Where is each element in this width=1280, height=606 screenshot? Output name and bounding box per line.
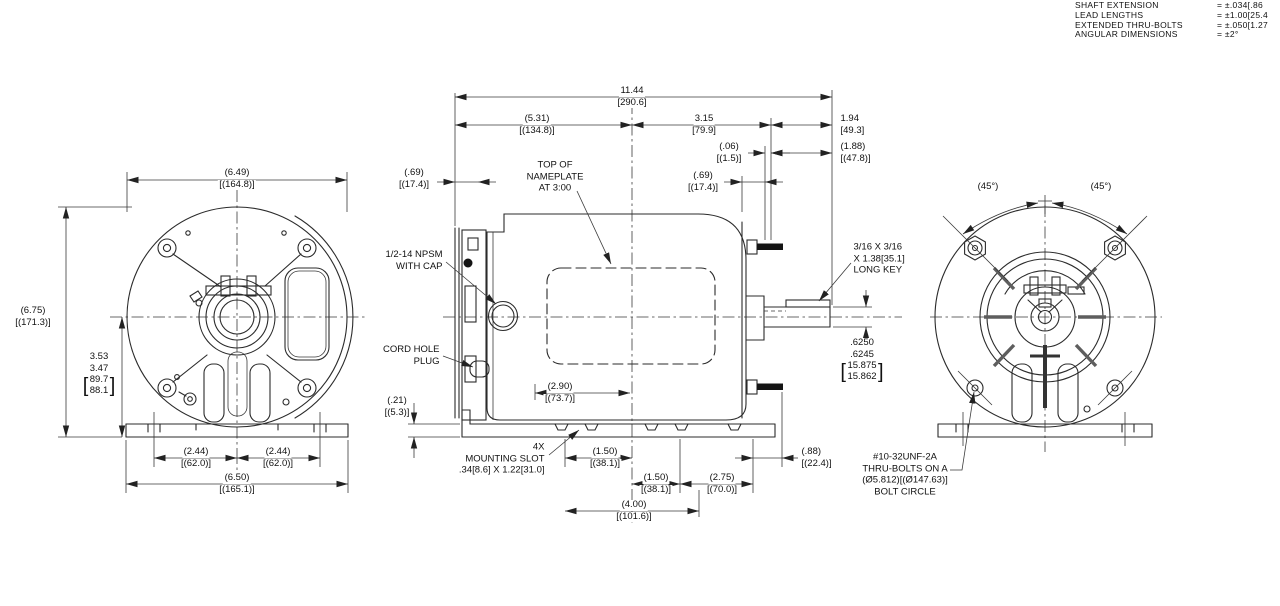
dim-foot-right: (2.44) [(62.0)] [261,447,294,469]
dim-in: (2.44) [264,447,292,458]
dim-in: (1.50) [591,447,619,458]
rear-view-drawing [930,195,1162,470]
callout-line: 4X [531,442,546,453]
bracket-glyph: ] [110,376,116,396]
dim-shaft-extension-ref: (1.88) [(47.8)] [839,142,872,164]
dim-mm: [79.9] [691,126,718,137]
callout-line: 3/16 X 3/16 [852,242,904,253]
dim-rear-face-offset: (.69) [(17.4)] [686,171,719,193]
dim-angle: (45°) [1089,182,1113,193]
dim-mm: [(38.1)] [588,459,621,470]
bracket-group: [ 15.875 15.862 ] [840,361,883,382]
callout-line: #10-32UNF-2A [872,453,939,464]
dim-mm: [(38.1)] [639,485,672,496]
dim-mm: 15.875 [846,361,878,372]
callout-nameplate: TOP OF NAMEPLATE AT 3:00 [525,160,585,194]
dim-in: (6.75) [19,306,47,317]
dim-in: (2.44) [182,447,210,458]
dim-in: 3.15 [693,114,715,125]
callout-cord-plug: CORD HOLE PLUG [382,345,441,367]
callout-thru-bolts: #10-32UNF-2A THRU-BOLTS ON A (Ø5.812)[(Ø… [861,453,950,498]
dim-in: .6245 [849,350,876,361]
dim-mm: 88.1 [88,386,110,397]
callout-line: BOLT CIRCLE [873,487,937,498]
callout-line: NAMEPLATE [525,172,585,183]
callout-line: LONG KEY [852,265,904,276]
dim-in: (.06) [718,142,741,153]
dim-mm: [(5.3)] [383,408,411,419]
dim-in: (5.31) [523,114,551,125]
tolerance-value: = ±2° [1217,30,1239,40]
dim-angle-right: (45°) [1089,182,1113,193]
dim-mm: [(73.7)] [543,394,576,405]
dim-in: 3.53 [88,352,110,363]
bracket-group: [ 89.7 88.1 ] [83,375,116,396]
callout-line: AT 3:00 [537,183,572,194]
dim-shaft-height: 3.53 3.47 [ 89.7 88.1 ] [83,352,116,396]
callout-line: TOP OF [536,160,574,171]
dim-shaft-extension: 1.94 [49.3] [839,114,866,136]
dim-in: (.69) [403,168,426,179]
dim-mm: [(171.3)] [14,318,52,329]
callout-line: CORD HOLE [382,345,441,356]
dim-in: (2.90) [546,382,574,393]
callout-npsm: 1/2-14 NPSM WITH CAP [384,250,444,272]
dim-in: (.88) [800,447,823,458]
bracket-glyph: ] [878,362,884,382]
dim-height: (6.75) [(171.3)] [14,306,52,328]
dim-mm: [(62.0)] [261,459,294,470]
dim-foot-left: (2.44) [(62.0)] [179,447,212,469]
dim-slot-spacing-rear: (1.50) [(38.1)] [639,473,672,495]
callout-line: PLUG [412,357,441,368]
dim-overall-length: 11.44 [290.6] [616,86,648,108]
callout-line: .34[8.6] X 1.22[31.0] [457,465,546,476]
dim-front-face-offset: (.69) [(17.4)] [397,168,430,190]
dim-mm: [(62.0)] [179,459,212,470]
callout-line: THRU-BOLTS ON A [861,464,949,475]
dim-mm: [(101.6)] [615,512,653,523]
engineering-drawing: SHAFT EXTENSION = ±.034[.86 LEAD LENGTHS… [0,0,1280,606]
dim-nameplate-offset: (2.90) [(73.7)] [543,382,576,404]
dim-in: 3.47 [88,364,110,375]
callout-line: 1/2-14 NPSM [384,250,444,261]
dim-mm: [(17.4)] [686,183,719,194]
dim-front-to-center: (5.31) [(134.8)] [518,114,556,136]
dim-mm: [49.3] [839,126,866,137]
dim-width: (6.49) [(164.8)] [218,168,256,190]
dim-mm: [(17.4)] [397,180,430,191]
callout-line: WITH CAP [395,262,444,273]
dim-in: (.69) [692,171,715,182]
dim-rear-overhang: (.88) [(22.4)] [800,447,833,469]
tolerance-row: ANGULAR DIMENSIONS = ±2° [1075,30,1268,40]
dim-in: (2.75) [708,473,736,484]
dim-in: (1.50) [642,473,670,484]
dim-in: (1.88) [839,142,867,153]
dim-slot-spacing-front: (1.50) [(38.1)] [588,447,621,469]
dim-mm: 89.7 [88,375,110,386]
dim-in: (4.00) [620,500,648,511]
dim-bolt-clearance: (.06) [(1.5)] [715,142,743,164]
dim-in: (6.49) [223,168,251,179]
dim-mm: [(22.4)] [800,459,833,470]
dim-base-thickness: (.21) [(5.3)] [383,396,411,418]
callout-line: (Ø5.812)[(Ø147.63)] [861,476,950,487]
tolerance-label: ANGULAR DIMENSIONS [1075,30,1217,40]
dim-mm: 15.862 [846,372,878,383]
dim-mm: [(134.8)] [518,126,556,137]
dim-rear-foot-offset: (2.75) [(70.0)] [705,473,738,495]
dim-mm: [(164.8)] [218,180,256,191]
front-view-drawing [58,172,366,493]
tolerance-block: SHAFT EXTENSION = ±.034[.86 LEAD LENGTHS… [1075,1,1268,40]
dim-in: (6.50) [223,473,251,484]
callout-key: 3/16 X 3/16 X 1.38[35.1] LONG KEY [852,242,906,276]
dim-shaft-diameter: .6250 .6245 [ 15.875 15.862 ] [840,338,883,382]
dim-center-to-rear: 3.15 [79.9] [691,114,718,136]
dim-mm: [(70.0)] [705,485,738,496]
dim-in: .6250 [849,338,876,349]
callout-line: X 1.38[35.1] [852,254,906,265]
dim-mm-stack: 15.875 15.862 [846,361,878,382]
dim-angle: (45°) [976,182,1000,193]
dim-mm: [290.6] [616,98,648,109]
dim-angle-left: (45°) [976,182,1000,193]
callout-line: MOUNTING SLOT [464,454,546,465]
dim-mm-stack: 89.7 88.1 [88,375,110,396]
callout-mounting-slot: 4X MOUNTING SLOT .34[8.6] X 1.22[31.0] [457,442,546,476]
dim-in: 11.44 [619,86,645,97]
dim-in: 1.94 [839,114,861,125]
dim-in: (.21) [386,396,409,407]
dim-slot-span: (4.00) [(101.6)] [615,500,653,522]
dim-mm: [(1.5)] [715,154,743,165]
dim-base-width: (6.50) [(165.1)] [218,473,256,495]
dim-mm: [(165.1)] [218,485,256,496]
dim-mm: [(47.8)] [839,154,872,165]
